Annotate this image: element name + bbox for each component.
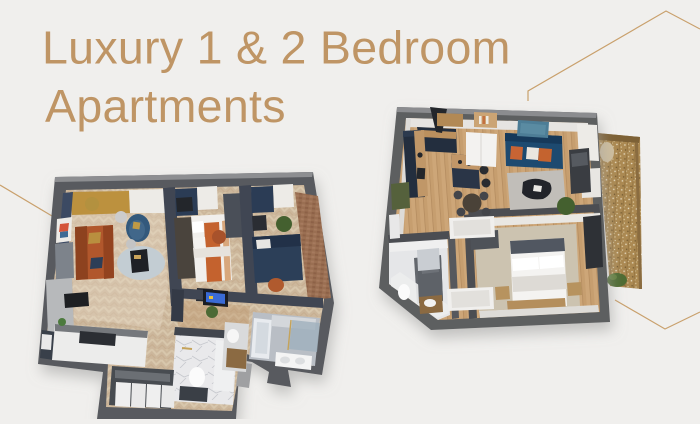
svg-text:Apartments: Apartments — [45, 80, 286, 132]
svg-text:Luxury 1 & 2 Bedroom: Luxury 1 & 2 Bedroom — [42, 22, 511, 74]
